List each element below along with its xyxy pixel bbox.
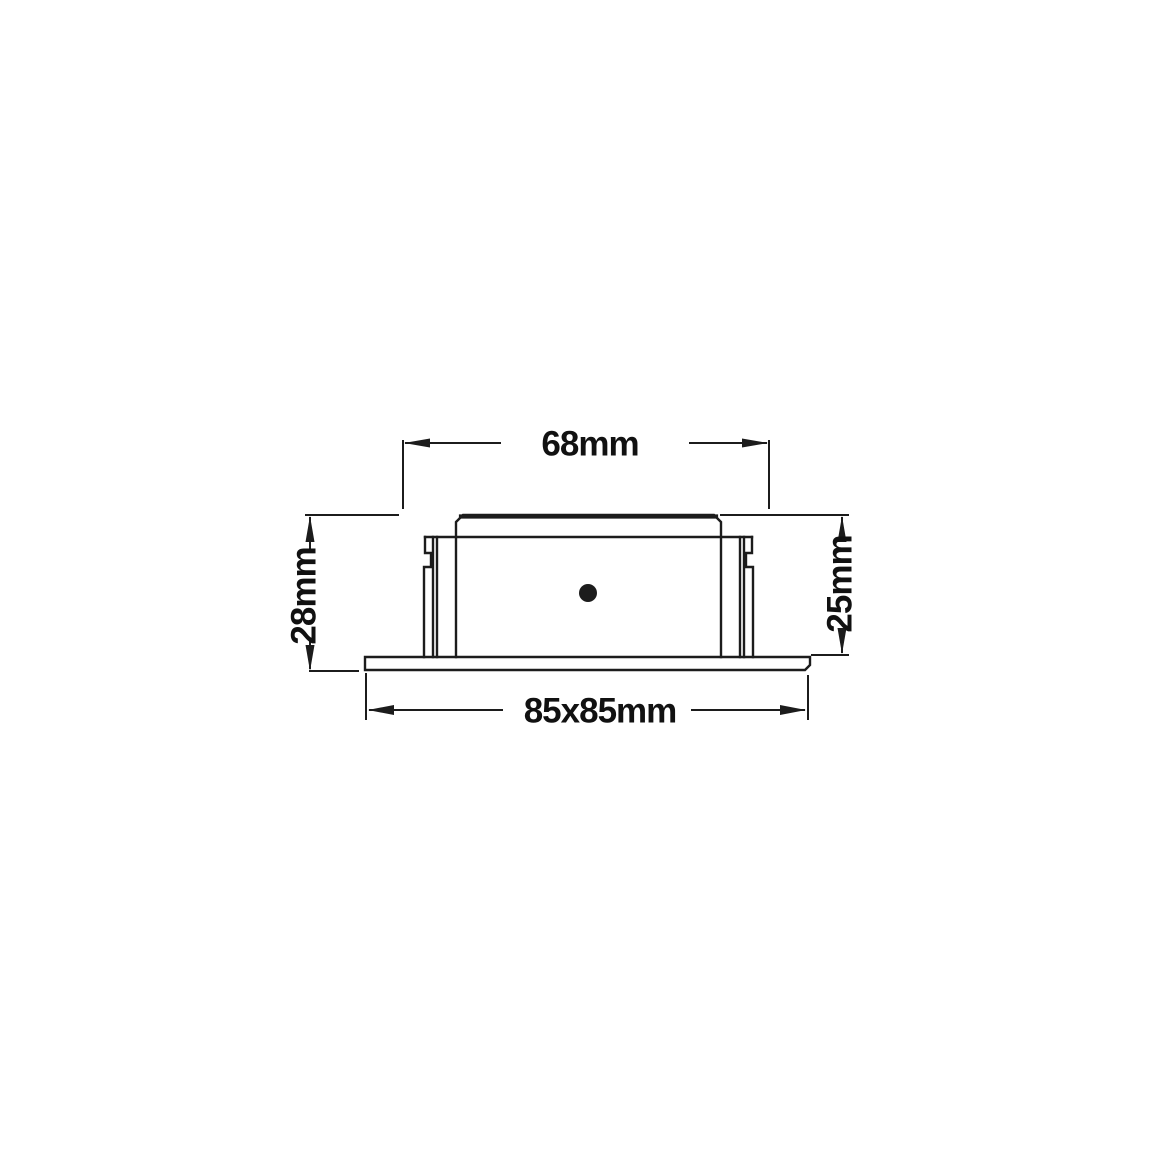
dimension-labels-group: 68mm 28mm 25mm 85x85mm <box>285 425 860 731</box>
dim-label-left-height: 28mm <box>285 547 324 644</box>
dimension-lines-group <box>306 441 848 719</box>
arrowhead-left-height-up <box>306 516 315 542</box>
clip-right-inner <box>740 537 744 657</box>
clip-right-outer <box>746 537 753 657</box>
technical-drawing-svg: 68mm 28mm 25mm 85x85mm <box>0 0 1160 1160</box>
dim-label-top-width: 68mm <box>541 425 638 464</box>
dim-label-right-height: 25mm <box>821 535 860 632</box>
center-mark-dot <box>579 584 597 602</box>
clip-left-inner <box>433 537 437 657</box>
clip-left-outer <box>424 537 431 657</box>
arrowhead-top-width-left <box>404 439 430 448</box>
technical-drawing-page: 68mm 28mm 25mm 85x85mm <box>0 0 1160 1160</box>
arrowhead-bottom-width-right <box>780 705 806 715</box>
arrowhead-bottom-width-left <box>368 705 394 715</box>
dim-label-bottom-footprint: 85x85mm <box>524 692 677 731</box>
arrowhead-top-width-right <box>742 439 768 448</box>
mounting-flange <box>365 657 810 670</box>
arrowhead-left-height-down <box>306 645 315 671</box>
arrowheads-group <box>306 439 847 716</box>
